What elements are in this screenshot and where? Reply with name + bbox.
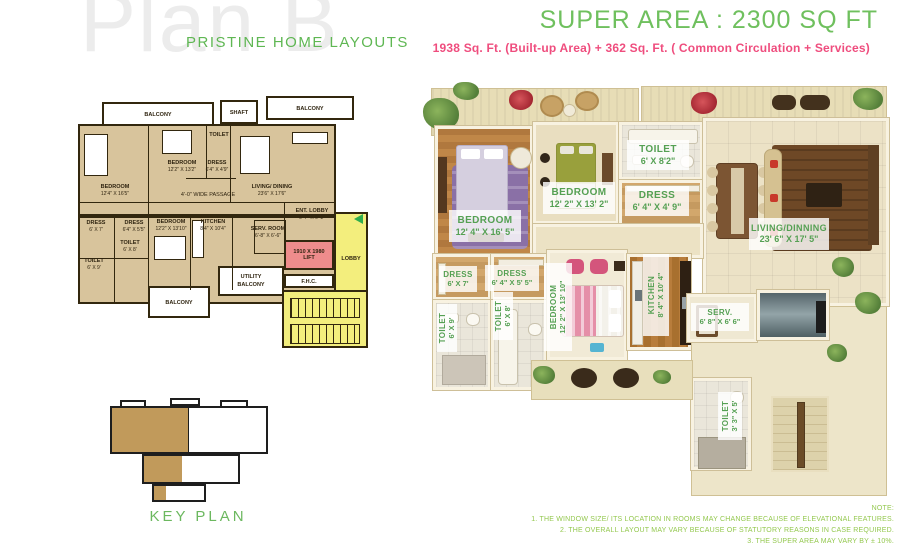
toilet-wc-icon [466, 313, 480, 326]
plant-icon [453, 82, 479, 100]
plan-b-brochure: Plan B PRISTINE HOME LAYOUTS SUPER AREA … [0, 0, 900, 548]
room-label-living-dining: LIVING/DINNING23' 6" X 17' 5" [749, 218, 829, 250]
stairs-icon [771, 396, 829, 472]
bw-shaft: SHAFT [220, 100, 258, 124]
bw-wall [114, 216, 115, 304]
bw-utility-label-2: BALCONY [220, 282, 282, 288]
dining-table-icon [240, 136, 270, 174]
shower-area [442, 355, 486, 385]
plant-icon [855, 292, 881, 314]
entry-arrow-icon [354, 214, 363, 224]
bw-wall [232, 216, 233, 290]
bed-icon [84, 134, 108, 176]
plant-icon [653, 370, 671, 384]
note-line-2: 2. THE OVERALL LAYOUT MAY VARY BECAUSE O… [434, 526, 894, 537]
pillow-icon [579, 146, 593, 154]
bench-icon [800, 95, 830, 110]
bw-lobby-label: LOBBY [336, 256, 366, 262]
room-label-toilet-2: TOILET6' X 8' [493, 292, 513, 340]
plant-icon [533, 366, 555, 384]
rattan-chair-icon [540, 95, 564, 117]
planter-icon [571, 368, 597, 388]
bw-fhc-label: F.H.C. [286, 279, 332, 285]
bw-label-toilet-2: TOILET6' X 8' [114, 240, 146, 254]
bw-lift-label: LIFT [303, 255, 315, 261]
room-label-toilet-top: TOILET6' X 8'2" [627, 140, 689, 170]
planter-icon [613, 368, 639, 388]
bw-floor-plan: BALCONY SHAFT BALCONY LOBBY 1910 X 1980 … [78, 88, 370, 350]
bw-label-living-dining: LIVING/ DINING23'6" X 17'6" [244, 184, 300, 198]
kitchen-counter-icon [632, 261, 643, 345]
bw-wall [78, 202, 336, 203]
bw-label-dress-top: DRESS6'4" X 4'9" [202, 160, 232, 174]
bw-label-ent-lobby: ENT. LOBBY6'-7" X 6'-2" [288, 208, 336, 222]
bw-utility-balcony: UTILITY BALCONY [218, 266, 284, 296]
pillow-icon [461, 149, 480, 159]
shaft-panel [816, 301, 826, 333]
tv-unit-icon [868, 145, 879, 245]
sofa-icon [292, 132, 328, 144]
bw-label-bedroom-3: BEDROOM12'2" X 13'10" [150, 219, 192, 233]
area-breakup-subtitle: 1938 Sq. Ft. (Built-up Area) + 362 Sq. F… [433, 41, 870, 55]
bw-balcony-bottom-label: BALCONY [150, 300, 208, 306]
bw-label-dress-2: DRESS6'4" X 5'5" [118, 220, 150, 234]
key-plan: KEY PLAN [98, 392, 298, 530]
room-label-dress-2: DRESS6' 4" X 5' 5" [485, 265, 539, 291]
bw-balcony-left: BALCONY [102, 102, 214, 126]
notes: NOTE: 1. THE WINDOW SIZE/ ITS LOCATION I… [434, 504, 894, 548]
round-table-icon [510, 147, 532, 169]
bw-label-passage: 4'-0" WIDE PASSAGE [170, 192, 246, 198]
chair-icon [707, 185, 718, 196]
room-label-toilet-1: TOILET6' X 9' [437, 304, 457, 352]
bw-label-dress-1: DRESS6' X 7' [80, 220, 112, 234]
room-label-serv: SERV.6' 8" X 6' 6" [691, 303, 749, 331]
armchair-icon [590, 259, 608, 274]
rendered-floor-plan: BEDROOM12' 4" X 16' 5" BEDROOM12' 2" X 1… [425, 82, 900, 498]
plant-icon [832, 257, 854, 277]
plan-room-bedroom-1 [435, 126, 533, 264]
bench-icon [772, 95, 796, 110]
room-label-bedroom-3: BEDROOM12' 2" X 13' 10" [544, 263, 572, 351]
stair-rail [797, 402, 805, 468]
bed-icon [162, 130, 192, 154]
brand-title: PRISTINE HOME LAYOUTS [186, 34, 409, 51]
pillow-icon [609, 314, 621, 332]
bw-lift-box: 1910 X 1980 LIFT [284, 240, 334, 270]
note-line-3: 3. THE SUPER AREA MAY VARY BY ± 10%. [434, 537, 894, 548]
key-plan-divider [188, 408, 189, 452]
bw-balcony-bottom: BALCONY [148, 286, 210, 318]
bw-stair-flight-upper [290, 298, 360, 318]
bw-label-bedroom-2: BEDROOM12'2" X 13'2" [158, 160, 206, 174]
room-label-bedroom-1: BEDROOM12' 4" X 16' 5" [449, 210, 521, 242]
room-label-bedroom-2: BEDROOM12' 2" X 13' 2" [543, 182, 615, 214]
side-table-icon [614, 261, 625, 271]
bw-label-bedroom-1: BEDROOM12'4" X 16'5" [86, 184, 144, 198]
note-title: NOTE: [434, 504, 894, 515]
room-label-dress-1: DRESS6' X 7' [439, 266, 477, 292]
toilet-wc-icon [528, 323, 542, 336]
wardrobe-icon [438, 157, 447, 213]
plant-icon [853, 88, 883, 110]
bw-label-toilet-1: TOILET6' X 9' [78, 258, 110, 272]
cushion-icon [770, 160, 778, 168]
coffee-table-icon [806, 183, 842, 207]
pillow-icon [484, 149, 503, 159]
note-line-1: 1. THE WINDOW SIZE/ ITS LOCATION IN ROOM… [434, 515, 894, 526]
room-label-kitchen: KITCHEN8' 4" X 10' 4" [643, 254, 669, 336]
key-plan-notch [170, 398, 200, 406]
bw-label-kitchen: KITCHEN8'4" X 10'4" [194, 219, 232, 233]
chair-icon [707, 221, 718, 232]
table-runner [731, 168, 744, 234]
bw-shaft-label: SHAFT [222, 110, 256, 116]
bw-balcony-left-label: BALCONY [104, 112, 212, 118]
bw-label-toilet-top: TOILET [204, 132, 234, 139]
bw-balcony-right-label: BALCONY [268, 106, 352, 112]
bw-wall [186, 178, 236, 179]
bw-staircase [282, 290, 368, 348]
stool-icon [540, 153, 550, 163]
bw-utility-label-1: UTILITY [220, 274, 282, 280]
room-label-dress-top: DRESS6' 4" X 4' 9" [625, 186, 689, 216]
bw-balcony-right: BALCONY [266, 96, 354, 120]
bed-icon [154, 236, 186, 260]
key-plan-highlight [112, 408, 188, 452]
room-label-toilet-3: TOILET3' 3" X 5' [718, 392, 742, 440]
bed-icon [456, 145, 508, 219]
key-plan-highlight [144, 456, 182, 482]
key-plan-highlight [154, 486, 166, 500]
bw-fhc-box: F.H.C. [284, 274, 334, 288]
bw-stair-flight-lower [290, 324, 360, 344]
rattan-chair-icon [575, 91, 599, 111]
lift-shaft-block [757, 290, 829, 340]
cushion-icon [770, 194, 778, 202]
chair-icon [707, 203, 718, 214]
dresser-icon [602, 153, 613, 185]
pillow-icon [609, 290, 621, 308]
side-table-icon [563, 104, 576, 117]
key-plan-label: KEY PLAN [98, 508, 298, 525]
chair-icon [707, 167, 718, 178]
super-area-title: SUPER AREA : 2300 SQ FT [540, 6, 878, 35]
shower-area [698, 437, 746, 469]
ottoman-icon [590, 343, 604, 352]
sink-icon [635, 290, 642, 301]
pillow-icon [560, 146, 574, 154]
plan-room-living-dining [703, 118, 889, 306]
plant-icon [827, 344, 847, 362]
bw-label-serv-room: SERV. ROOM6'-8" X 6'-6" [240, 226, 296, 240]
